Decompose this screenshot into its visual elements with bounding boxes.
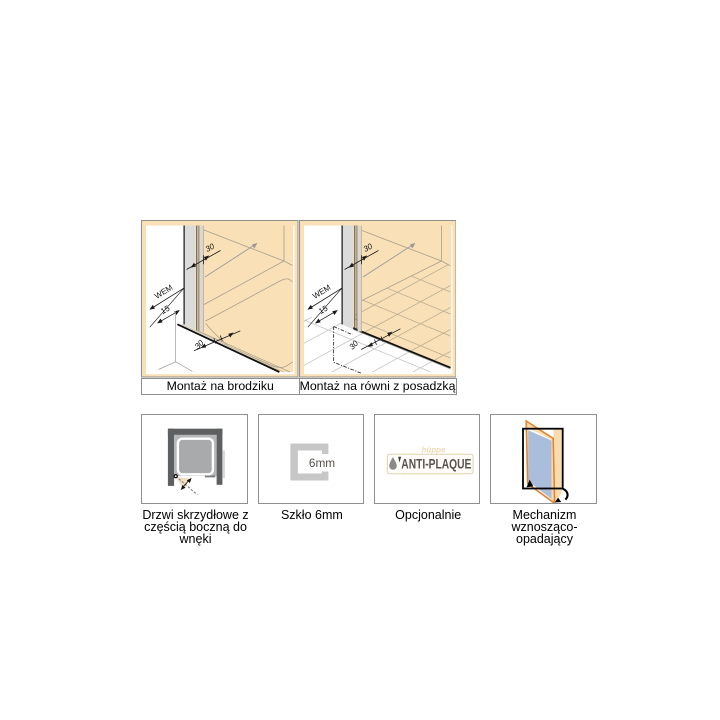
svg-text:6mm: 6mm xyxy=(308,456,334,470)
svg-text:hüppe: hüppe xyxy=(421,445,446,454)
svg-text:ANTI-PLAQUE: ANTI-PLAQUE xyxy=(401,456,471,471)
